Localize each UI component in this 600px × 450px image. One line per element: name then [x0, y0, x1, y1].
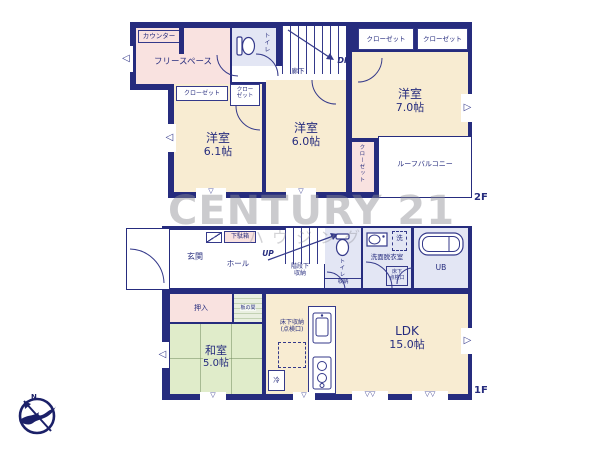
room-61-door-arc: [236, 106, 260, 130]
floor-plan-canvas: カウンター フリースペース トイレ 廊下 DN クローゼット クローゼット 洋室…: [0, 0, 600, 450]
watermark-subtext: ハウジング: [248, 224, 368, 248]
room-60-door-arc: [312, 80, 336, 104]
room-70-door-arc: [358, 58, 382, 82]
compass-north-label: N: [31, 393, 37, 401]
washroom-door-arc: [366, 262, 392, 288]
toilet-1f-door-arc: [327, 272, 345, 290]
toilet-2f-door-arc: [256, 54, 278, 76]
free-space-door-arc: [217, 55, 238, 76]
front-door-arc: [130, 249, 164, 283]
unit-bath-door-arc: [397, 268, 413, 284]
compass-north-icon: N: [12, 388, 62, 442]
stairs-down-arrow-line: [288, 30, 332, 59]
